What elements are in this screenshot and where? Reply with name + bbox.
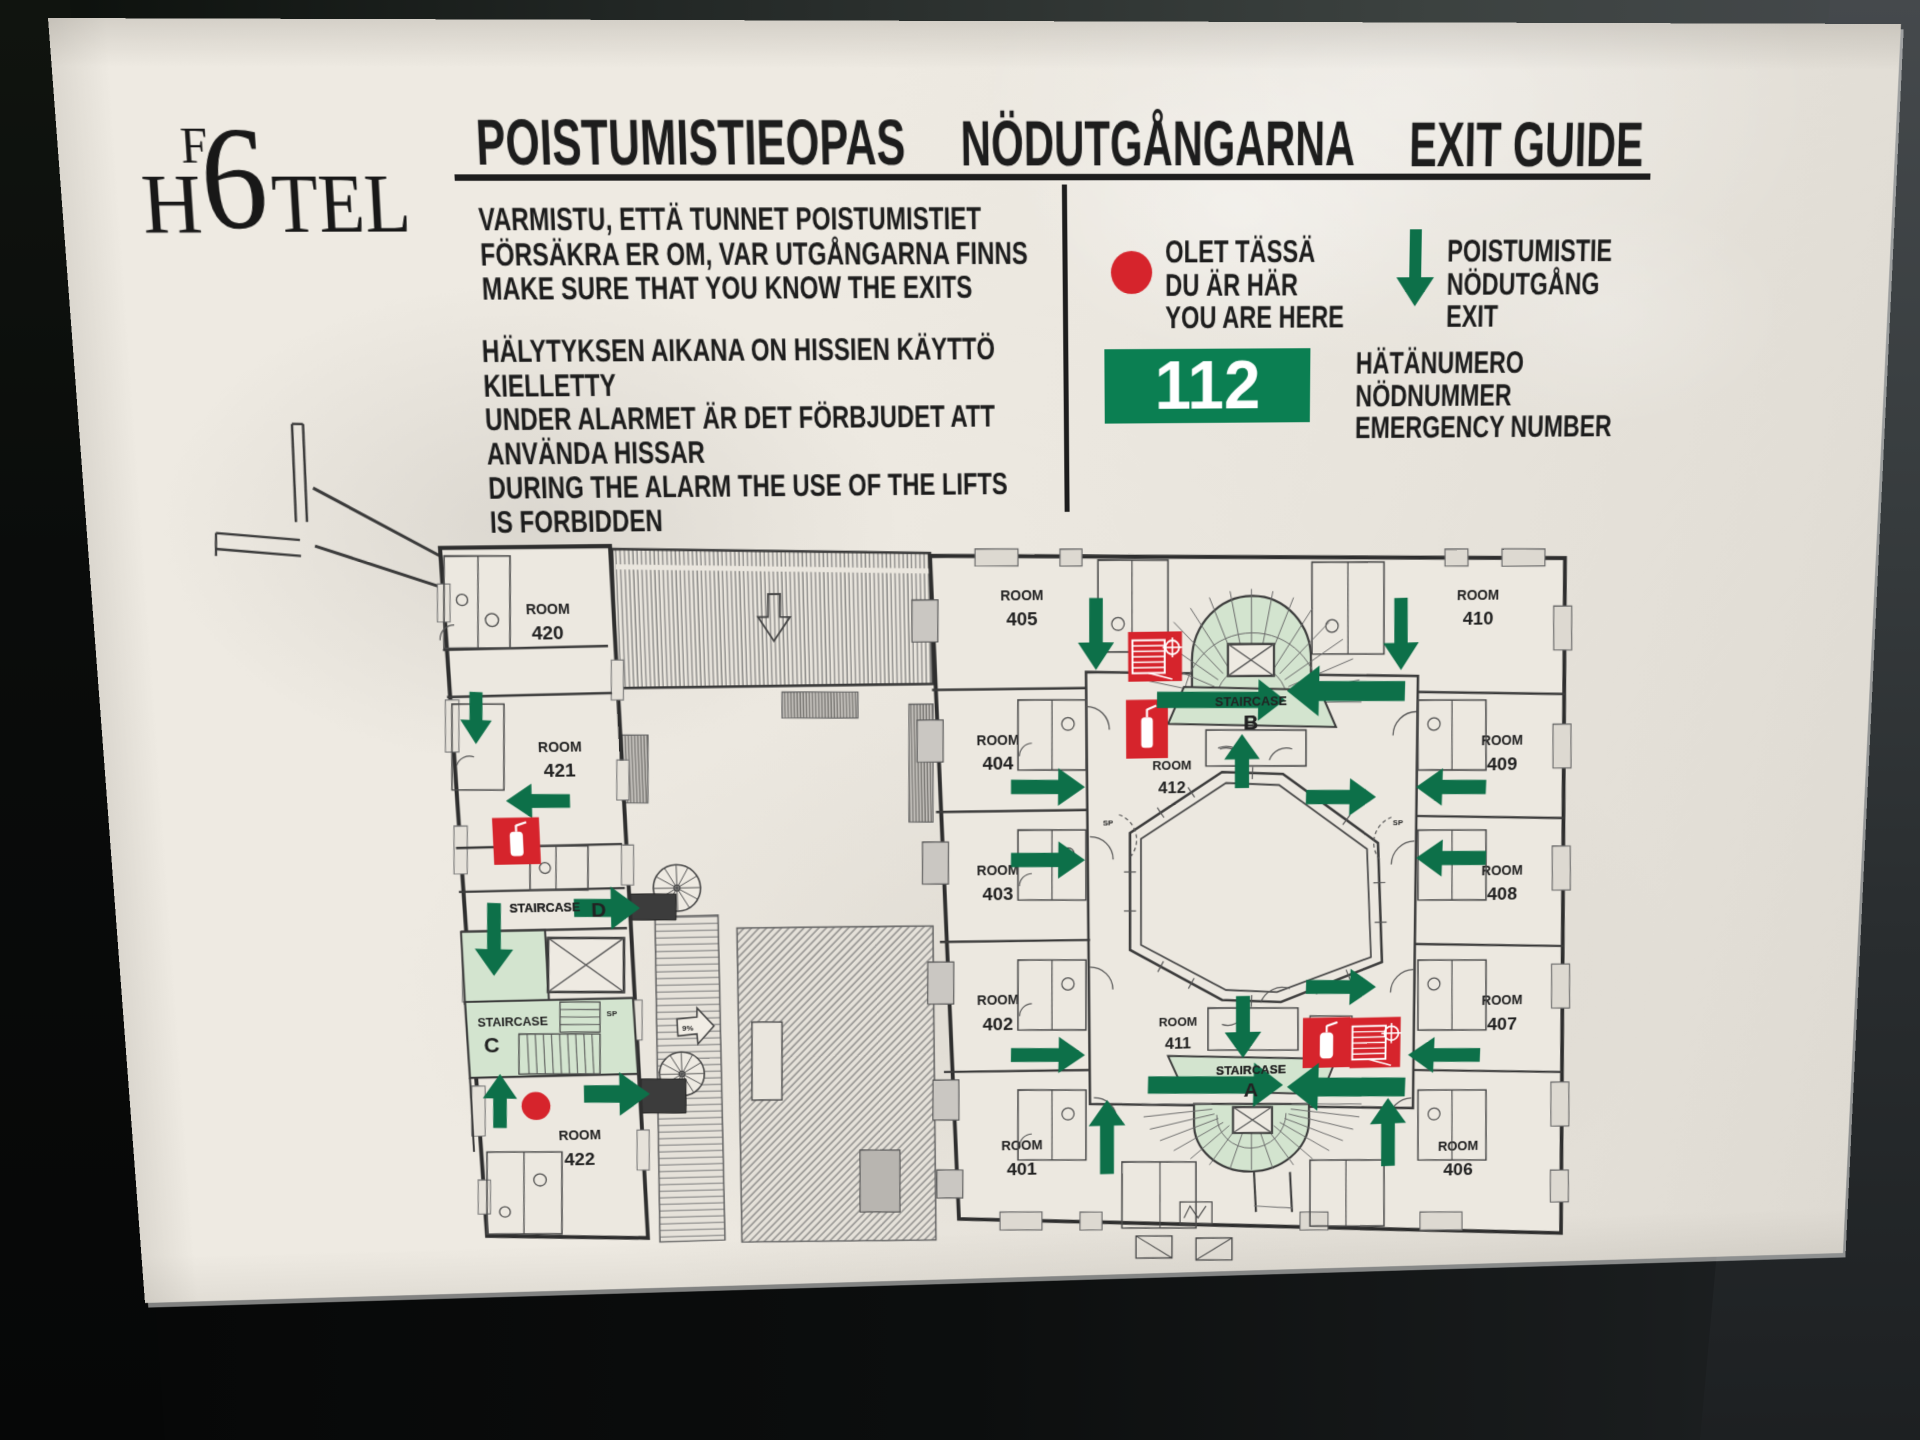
svg-text:422: 422 [564,1149,596,1169]
svg-text:410: 410 [1463,609,1494,630]
svg-text:SP: SP [606,1009,617,1018]
svg-text:ROOM: ROOM [1457,588,1499,604]
svg-text:412: 412 [1158,778,1185,797]
svg-text:407: 407 [1487,1014,1517,1034]
svg-text:404: 404 [982,754,1014,775]
svg-text:ROOM: ROOM [558,1128,601,1144]
svg-text:420: 420 [531,622,564,644]
svg-text:ROOM: ROOM [1001,1138,1043,1153]
svg-text:STAIRCASE: STAIRCASE [1216,1063,1286,1078]
svg-text:ROOM: ROOM [977,993,1019,1009]
svg-text:A: A [1244,1079,1259,1101]
svg-text:ROOM: ROOM [1159,1015,1197,1030]
svg-text:STAIRCASE: STAIRCASE [477,1015,548,1030]
svg-text:ROOM: ROOM [1481,993,1522,1008]
svg-text:421: 421 [543,760,576,781]
svg-text:D: D [591,898,607,921]
svg-text:401: 401 [1007,1159,1038,1179]
svg-text:SP: SP [1103,818,1113,827]
svg-text:ROOM: ROOM [538,740,582,756]
svg-text:ROOM: ROOM [525,602,570,618]
svg-text:ROOM: ROOM [976,733,1019,749]
svg-text:C: C [483,1034,500,1058]
svg-text:9%: 9% [682,1024,694,1033]
svg-text:408: 408 [1487,884,1517,904]
svg-text:409: 409 [1487,754,1518,775]
svg-text:ROOM: ROOM [1152,759,1191,774]
svg-text:SP: SP [1393,818,1403,827]
svg-text:405: 405 [1006,608,1038,629]
svg-text:402: 402 [983,1014,1014,1035]
svg-text:ROOM: ROOM [1000,588,1043,604]
svg-text:411: 411 [1165,1034,1191,1053]
svg-text:STAIRCASE: STAIRCASE [1215,695,1287,710]
svg-text:ROOM: ROOM [1438,1139,1479,1154]
svg-text:406: 406 [1443,1160,1473,1180]
svg-text:ROOM: ROOM [1481,863,1522,879]
svg-text:ROOM: ROOM [1481,733,1523,749]
svg-text:403: 403 [982,884,1013,905]
svg-text:B: B [1244,710,1259,733]
svg-text:STAIRCASE: STAIRCASE [509,901,580,916]
